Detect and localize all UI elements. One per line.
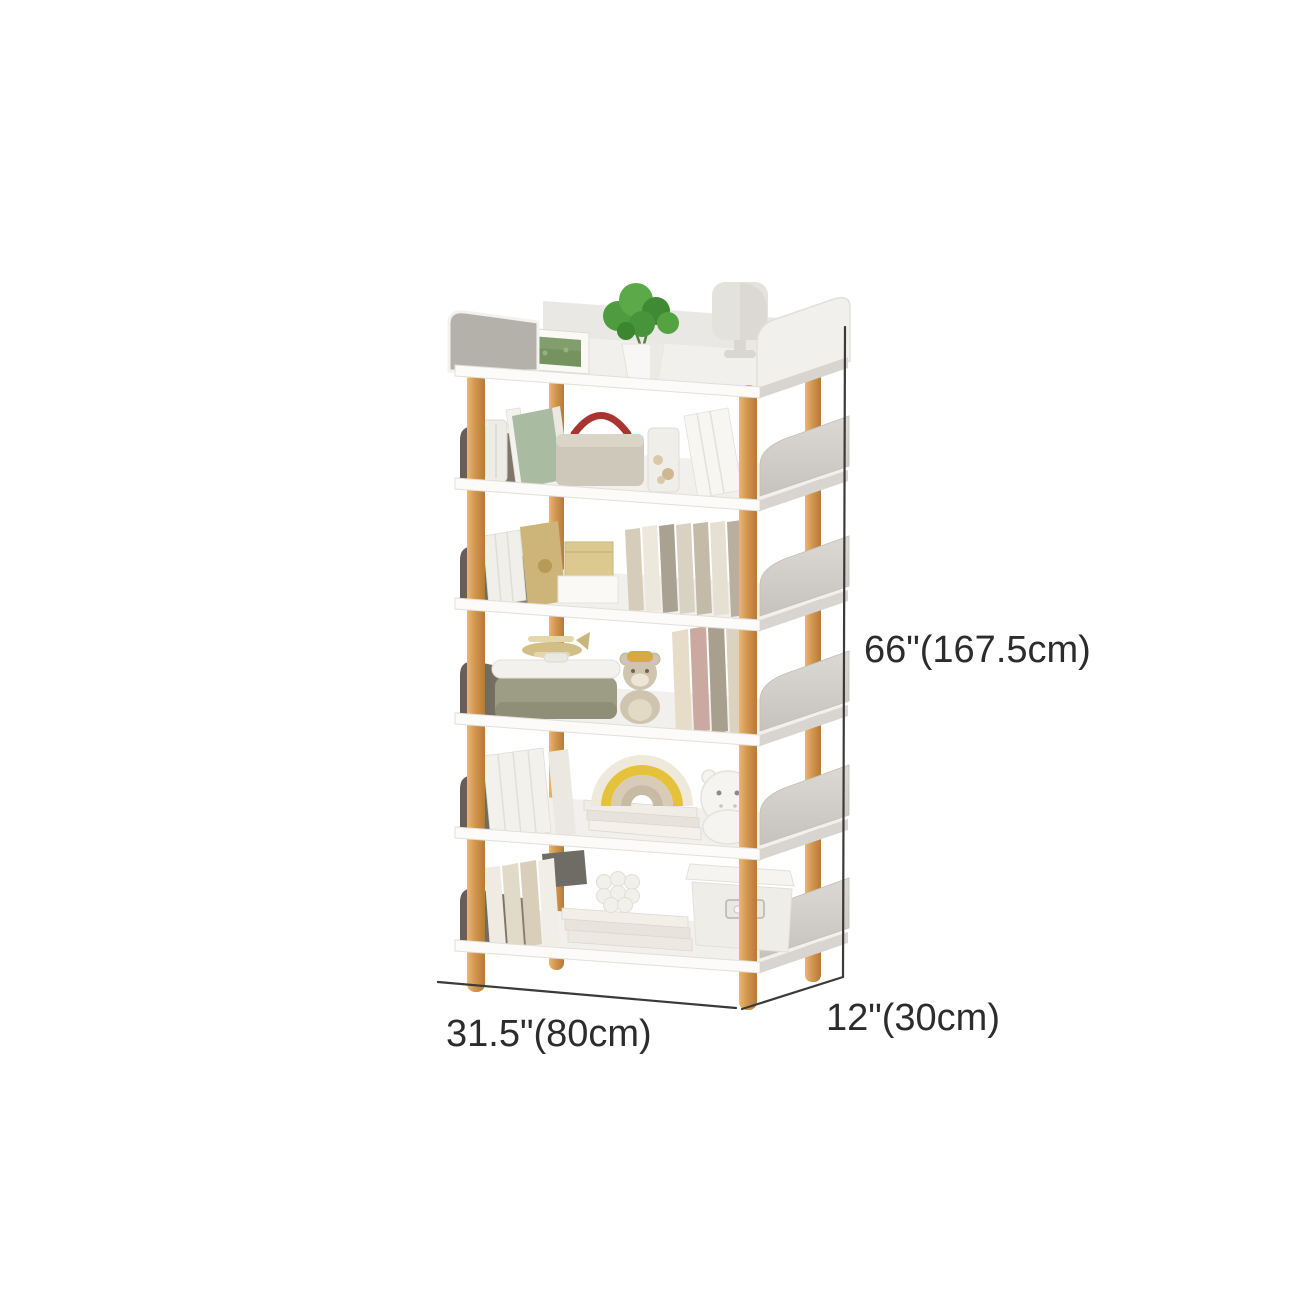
book-row <box>672 622 746 735</box>
book-row <box>625 520 746 617</box>
width-dimension-line <box>438 982 736 1008</box>
white-books <box>483 748 576 840</box>
storage-case <box>492 653 620 719</box>
storage-basket <box>556 416 644 487</box>
bubble-candle <box>597 872 640 913</box>
depth-label: 12"(30cm) <box>826 997 1000 1039</box>
product-image: 66"(167.5cm) 31.5"(80cm) 12"(30cm) <box>0 0 1300 1300</box>
front-right-post <box>739 385 757 1010</box>
height-label: 66"(167.5cm) <box>864 629 1091 671</box>
width-label: 31.5"(80cm) <box>446 1013 652 1055</box>
shell-jar <box>648 428 679 492</box>
gift-box <box>558 542 618 603</box>
white-books <box>483 530 526 606</box>
rainbow-stacker <box>596 760 688 806</box>
front-left-post <box>467 372 485 992</box>
teddy-bear <box>620 651 660 724</box>
left-side-rail <box>449 312 538 371</box>
bookshelf-diagram: 66"(167.5cm) 31.5"(80cm) 12"(30cm) <box>0 0 1300 1300</box>
